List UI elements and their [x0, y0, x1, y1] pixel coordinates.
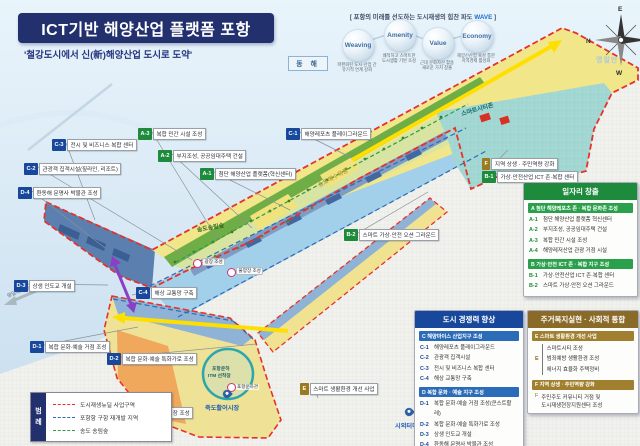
- callout-text: 부지조성, 공공임대주택 건설: [173, 150, 246, 162]
- red-dash-swatch: [53, 404, 75, 405]
- project-row: C-1해양레포츠 플레이그라운드: [415, 343, 523, 353]
- map-text: 영일만: [596, 55, 618, 65]
- map-callout-b-2: B-2스마트 가상·안전 오션 그라운드: [344, 229, 439, 241]
- callout-code: A-3: [138, 128, 152, 140]
- callout-code: D-1: [30, 341, 44, 353]
- zone-d-band: D 복합 문화 · 예술 지구 조성: [419, 387, 519, 397]
- callout-code: C-1: [286, 128, 300, 140]
- callout-text: 관광객 집객시설(짚라인, 리조트): [39, 163, 121, 175]
- project-row: D-2복합 문화·예술 특화가로 조성: [415, 420, 523, 430]
- callout-text: 스마트 생활환경 개선 사업: [310, 383, 378, 395]
- map-callout-c-2: C-2관광객 집객시설(짚라인, 리조트): [24, 163, 121, 175]
- project-row: C-3전시 및 비즈니스 복합 센터: [415, 364, 523, 374]
- map-text: 광장 조성: [202, 258, 225, 266]
- map-text: 포항운하: [212, 365, 230, 372]
- callout-code: F: [482, 158, 490, 170]
- map-text: 물양장 조성: [236, 267, 263, 275]
- map-callout-a-2: A-2부지조성, 공공임대주택 건설: [158, 150, 246, 162]
- green-dash-swatch: [53, 430, 75, 431]
- callout-code: E: [300, 383, 309, 395]
- map-text: 죽도활어시장: [205, 403, 239, 412]
- jobs-box-title: 일자리 창출: [524, 183, 637, 200]
- callout-code: A-1: [200, 168, 214, 180]
- project-row: A-4해양레저산업 관광 거점 시설: [524, 246, 637, 256]
- callout-text: 복합 문화·예술 특화가로 조성: [122, 353, 197, 365]
- callout-text: 전시 및 비즈니스 복합 센터: [67, 139, 137, 151]
- zone-b-band: B 가상·안전 ICT 존 · 복합 지구 조성: [528, 259, 633, 269]
- callout-code: A-2: [158, 150, 172, 162]
- callout-code: D-3: [14, 280, 28, 292]
- map-callout-a-3: A-3복합 민간 시설 조성: [138, 128, 206, 140]
- project-row: A-2부지조성, 공공임대주택 건설: [524, 225, 637, 235]
- project-row: D-4환동해 문명사 박물관 조성: [415, 440, 523, 446]
- zone-a-band: A 첨단 해양레포츠 존 · 복합 문화존 조성: [528, 203, 633, 213]
- zone-e-band: E 스마트 생활환경 개선 사업: [532, 331, 634, 341]
- project-row: A-1첨단 해양산업 플랫폼 혁신센터: [524, 215, 637, 225]
- legend-tab: 범례: [31, 393, 46, 441]
- map-callout-e: E스마트 생활환경 개선 사업: [300, 383, 378, 395]
- callout-code: B-1: [482, 171, 496, 183]
- callout-text: 복합 민간 시설 조성: [153, 128, 206, 140]
- city-box-title: 도시 경쟁력 향상: [415, 311, 523, 328]
- legend-item: 도시재생뉴딜 사업구역: [53, 400, 171, 409]
- zone-e-items: E 스마트시티 조성 범죄예방 생활환경 조성 에너지 효율화 주택정비: [528, 343, 638, 377]
- project-row: C-4해상 교통망 구축: [415, 374, 523, 384]
- callout-text: 환동해 문명사 박물관 조성: [33, 187, 101, 199]
- welfare-box: 주거복지실현 · 사회적 통합 E 스마트 생활환경 개선 사업 E 스마트시티…: [527, 310, 639, 414]
- project-row: 에너지 효율화 주택정비: [547, 365, 600, 375]
- map-callout-c-1: C-1해양레포츠 플레이그라운드: [286, 128, 371, 140]
- zone-f-item: F 주민주도 커뮤니티 거점 및 도시재생현장지원센터 조성: [528, 392, 638, 413]
- project-row: D-3상생 인도교 개설: [415, 430, 523, 440]
- map-callout-c-3: C-3전시 및 비즈니스 복합 센터: [52, 139, 137, 151]
- callout-text: 해상 교통망 구축: [151, 287, 197, 299]
- map-callout-c-4: C-4해상 교통망 구축: [136, 287, 197, 299]
- map-callout-d-4: D-4환동해 문명사 박물관 조성: [18, 187, 101, 199]
- callout-text: 스마트 가상·안전 오션 그라운드: [359, 229, 439, 241]
- callout-code: D-4: [18, 187, 32, 199]
- callout-code: C-3: [52, 139, 66, 151]
- callout-text: 해양레포츠 플레이그라운드: [301, 128, 371, 140]
- callout-code: D-2: [107, 353, 121, 365]
- zone-f-band: F 지역 상생 · 주민역량 강화: [532, 380, 634, 390]
- legend-item: 송도 송림숲: [53, 426, 171, 435]
- map-callout-a-1: A-1첨단 해양산업 플랫폼(혁신센터): [200, 168, 296, 180]
- site-marker-icon: [227, 268, 236, 277]
- map-text: 포항운하관: [236, 384, 259, 390]
- legend-item: 포항항 구항 재개발 지역: [53, 413, 171, 422]
- map-callout-d-2: D-2복합 문화·예술 특화가로 조성: [107, 353, 197, 365]
- map-callout-d-3: D-3상생 인도교 개설: [14, 280, 75, 292]
- callout-code: B-2: [344, 229, 358, 241]
- welfare-box-title: 주거복지실현 · 사회적 통합: [528, 311, 638, 328]
- site-marker-icon: [193, 259, 202, 268]
- callout-code: C-2: [24, 163, 38, 175]
- jobs-box: 일자리 창출 A 첨단 해양레포츠 존 · 복합 문화존 조성 A-1첨단 해양…: [523, 182, 638, 297]
- callout-text: 지역 상생 · 주민역량 강화: [491, 158, 558, 170]
- callout-text: 첨단 해양산업 플랫폼(혁신센터): [215, 168, 296, 180]
- map-callout-f: F지역 상생 · 주민역량 강화: [482, 158, 558, 170]
- project-row: D-1복합 문화·예술 거점 조성(쿤스트할레): [415, 399, 523, 420]
- map-callout-d-1: D-1복합 문화·예술 거점 조성: [30, 341, 110, 353]
- map-legend: 범례 도시재생뉴딜 사업구역 포항항 구항 재개발 지역 송도 송림숲: [30, 392, 172, 442]
- map-text: ITM 선착장: [208, 372, 231, 379]
- zone-c-band: C 해양마이스 산업지구 조성: [419, 331, 519, 341]
- project-row: B-2스마트 가상·안전 오션 그라운드: [524, 281, 637, 295]
- callout-code: C-4: [136, 287, 150, 299]
- project-row: 범죄예방 생활환경 조성: [547, 354, 600, 364]
- city-box: 도시 경쟁력 향상 C 해양마이스 산업지구 조성 C-1해양레포츠 플레이그라…: [414, 310, 524, 446]
- project-row: A-3복합 민간 시설 조성: [524, 236, 637, 246]
- project-row: 스마트시티 조성: [547, 344, 600, 354]
- callout-text: 복합 문화·예술 거점 조성: [45, 341, 110, 353]
- callout-text: 상생 인도교 개설: [29, 280, 75, 292]
- blue-dash-swatch: [53, 417, 75, 418]
- project-row: C-2관광객 집객시설: [415, 353, 523, 363]
- project-row: B-1가상·안전산업 ICT 존·복합 센터: [524, 271, 637, 281]
- pohang-masterplan-map: E N S W ICT기반 해양산업 플랫폼 포항 '철강도시에서 신(新)해양…: [0, 0, 640, 446]
